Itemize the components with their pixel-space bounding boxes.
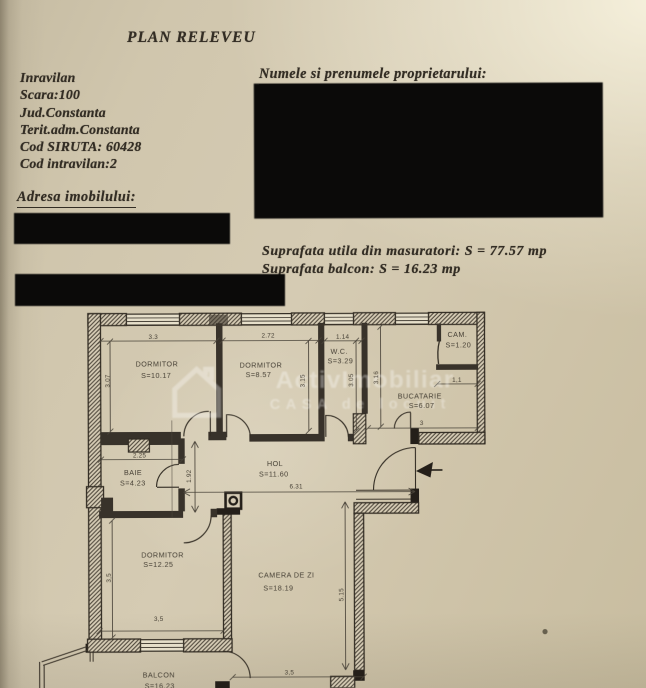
svg-text:3.05: 3.05	[348, 373, 355, 387]
svg-text:S=12.25: S=12.25	[143, 560, 173, 569]
svg-text:CAM.: CAM.	[447, 330, 467, 339]
svg-text:5.15: 5.15	[338, 588, 345, 602]
svg-text:1.92: 1.92	[186, 469, 193, 483]
svg-text:S=16.23: S=16.23	[145, 681, 175, 688]
svg-text:BALCON: BALCON	[143, 670, 175, 679]
svg-text:3,07: 3,07	[105, 374, 112, 388]
svg-text:3,5: 3,5	[154, 616, 164, 623]
svg-text:S=10.17: S=10.17	[141, 371, 171, 380]
svg-text:S=11.60: S=11.60	[259, 470, 289, 479]
svg-text:3: 3	[420, 420, 424, 427]
svg-text:3.15: 3.15	[300, 374, 307, 388]
svg-text:2.25: 2.25	[133, 453, 147, 460]
svg-text:S=3.29: S=3.29	[328, 356, 354, 365]
svg-text:1,1: 1,1	[452, 377, 462, 384]
svg-text:3.3: 3.3	[148, 334, 158, 341]
svg-text:DORMITOR: DORMITOR	[240, 361, 283, 370]
svg-text:3,5: 3,5	[106, 573, 113, 583]
svg-text:S=8.57: S=8.57	[246, 370, 272, 379]
svg-text:S=1.20: S=1.20	[446, 340, 472, 349]
svg-text:S=18.19: S=18.19	[263, 583, 293, 592]
svg-text:6.31: 6.31	[290, 483, 304, 490]
svg-text:BAIE: BAIE	[124, 468, 142, 477]
svg-text:3.16: 3.16	[373, 371, 380, 385]
svg-text:1.14: 1.14	[336, 334, 350, 341]
svg-text:S=4.23: S=4.23	[120, 479, 146, 488]
svg-text:W.C.: W.C.	[331, 347, 348, 356]
svg-text:S=6.07: S=6.07	[409, 401, 435, 410]
svg-text:CAMERA DE ZI: CAMERA DE ZI	[258, 570, 314, 579]
svg-text:DORMITOR: DORMITOR	[136, 359, 179, 368]
svg-text:3,5: 3,5	[285, 669, 295, 676]
svg-text:DORMITOR: DORMITOR	[141, 550, 184, 559]
svg-text:HOL: HOL	[267, 459, 283, 468]
svg-text:BUCATARIE: BUCATARIE	[398, 391, 442, 400]
svg-text:2.72: 2.72	[261, 333, 275, 340]
